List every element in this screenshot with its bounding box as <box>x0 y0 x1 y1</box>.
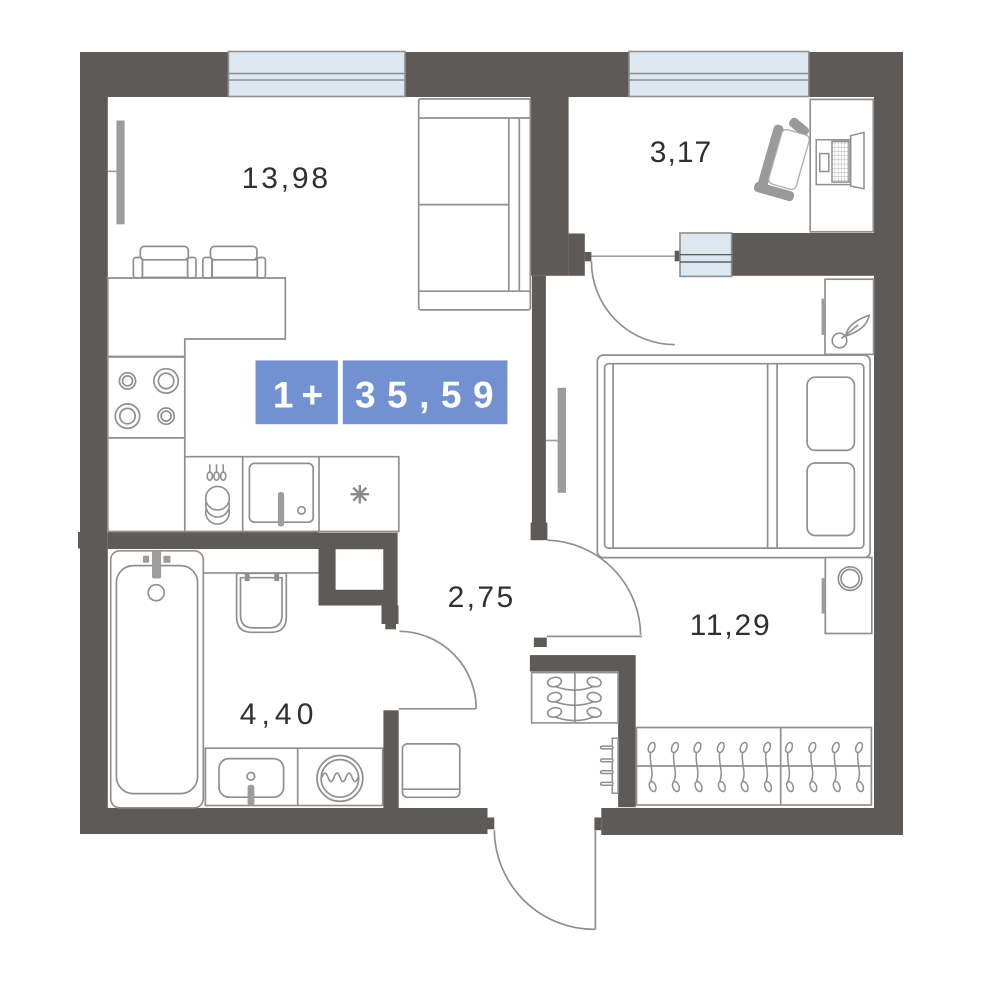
svg-text:4,40: 4,40 <box>240 698 319 731</box>
svg-text:1+: 1+ <box>273 375 331 416</box>
svg-text:11,29: 11,29 <box>690 609 772 642</box>
svg-text:35,59: 35,59 <box>355 375 505 416</box>
svg-text:2,75: 2,75 <box>448 581 516 614</box>
svg-text:3,17: 3,17 <box>650 136 712 169</box>
svg-text:13,98: 13,98 <box>242 162 331 195</box>
